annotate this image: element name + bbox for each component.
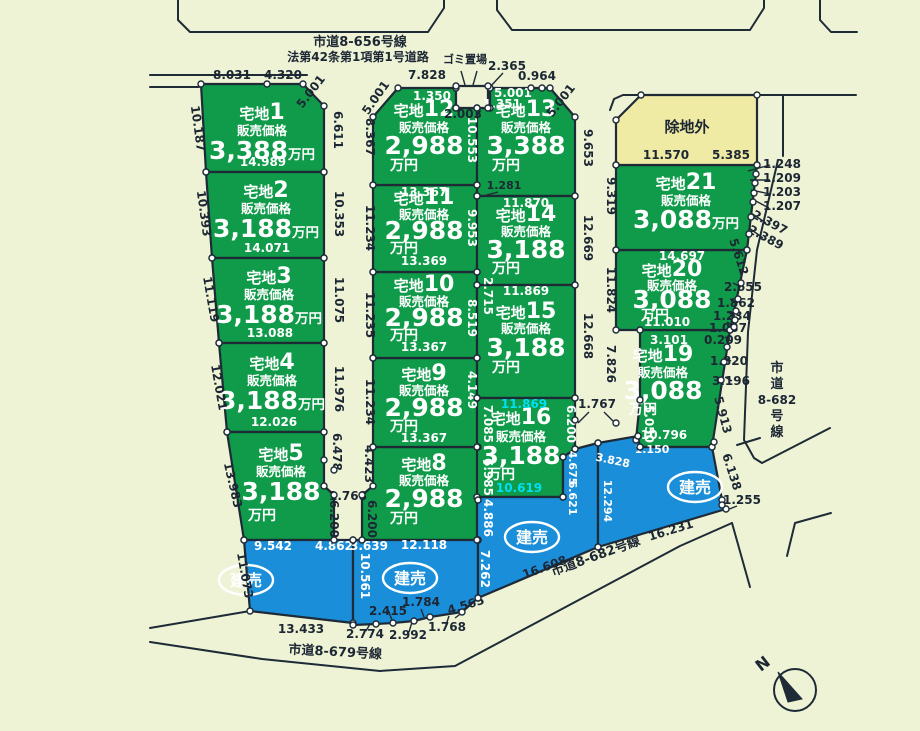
vertex-dot [350,622,356,628]
kenbai-label-kenbai-south: 建売 [516,528,548,547]
vertex-dot [748,214,754,220]
vertex-dot [754,162,760,168]
vertex-dot [370,355,376,361]
map-label: 線 [770,424,784,440]
vertex-dot [474,269,480,275]
map-label: 4.149 [465,371,479,409]
vertex-dot [572,282,578,288]
vertex-dot [572,417,578,423]
map-label: 10.353 [332,191,346,237]
vertex-dot [321,483,327,489]
vertex-dot [370,483,376,489]
map-label: 6.200 [365,500,379,538]
vertex-dot [203,169,209,175]
map-label: 市道8-656号線 [313,34,408,50]
vertex-dot [719,502,725,508]
map-label: 13.367 [401,340,447,354]
map-label: 12.118 [401,538,447,552]
vertex-dot [321,457,327,463]
map-label: 11.824 [604,267,618,313]
vertex-dot [572,446,578,452]
map-label: 11.075 [332,277,346,323]
vertex-dot [753,171,759,177]
road-line [732,523,750,587]
map-label: 11.976 [332,366,346,412]
vertex-dot [528,85,534,91]
vertex-dot [300,81,306,87]
vertex-dot [331,537,337,543]
vertex-dot [638,92,644,98]
map-label: 11.234 [363,205,377,251]
vertex-dot [732,317,738,323]
plot-price-lot-12: 2,988 [384,131,463,160]
land-subdivision-map: 宅地1販売価格3,388万円宅地2販売価格3,188万円宅地3販売価格3,188… [0,0,920,731]
vertex-dot [560,454,566,460]
map-label: 7.262 [478,550,492,588]
vertex-dot [427,614,433,620]
north-arrow-pointer [778,672,802,702]
map-label: 6.200 [564,405,578,443]
map-label: 10.619 [496,481,542,495]
map-label: 1.209 [763,171,801,185]
map-label: 12.669 [581,215,595,261]
map-label: 10.561 [358,553,372,599]
vertex-dot [738,280,744,286]
map-label: 7.826 [604,345,618,383]
map-label: 1.281 [487,179,522,192]
vertex-dot [724,344,730,350]
map-label: 14.071 [244,241,290,255]
vertex-dot [560,494,566,500]
vertex-dot [331,492,337,498]
road-line [497,0,764,30]
map-label: 4.320 [264,68,302,82]
map-label: 5.385 [712,148,750,162]
vertex-dot [613,117,619,123]
vertex-dot [224,429,230,435]
plot-price-lot-13: 3,388 [486,131,565,160]
vertex-dot [721,359,727,365]
vertex-dot [453,83,459,89]
vertex-dot [395,85,401,91]
vertex-dot [459,609,465,615]
vertex-dot [613,247,619,253]
vertex-dot [264,81,270,87]
map-label: 10.553 [465,117,479,163]
plot-price-unit-lot-8: 万円 [389,511,418,527]
map-label: 1.784 [402,595,440,609]
vertex-dot [321,169,327,175]
vertex-dot [635,433,641,439]
vertex-dot [359,537,365,543]
plot-price-lot-15: 3,188 [486,333,565,362]
leader-line [461,71,465,85]
vertex-dot [474,537,480,543]
vertex-dot [539,85,545,91]
vertex-dot [735,296,741,302]
vertex-dot [613,420,619,426]
map-label: 号 [770,409,783,424]
vertex-dot [750,199,756,205]
map-label: 4.423 [362,445,376,483]
vertex-dot [241,537,247,543]
map-label: 11.869 [503,284,549,298]
map-label: 11.010 [644,315,690,329]
map-label: 9.953 [465,209,479,247]
map-label: 1.767 [578,397,616,411]
vertex-dot [547,85,553,91]
map-label: 9.319 [604,177,618,215]
map-label: 6.621 [566,481,579,516]
vertex-dot [370,182,376,188]
map-label: ゴミ置場 [443,52,487,66]
leader-line [578,412,589,423]
map-label: 4.886 [481,499,495,537]
map-label: 道 [770,376,783,392]
map-label: 8.031 [213,68,251,82]
plot-price-lot-9: 2,988 [384,393,463,422]
map-label: 6.985 [481,458,495,496]
map-label: 6.478 [330,433,344,471]
vertex-dot [485,83,491,89]
vertex-dot [247,608,253,614]
vertex-dot [321,429,327,435]
vertex-dot [321,340,327,346]
map-label: 9.653 [581,129,595,167]
map-label: 14.697 [659,249,705,263]
vertex-dot [373,621,379,627]
map-label: 6.200 [327,500,341,538]
plot-price-lot-5: 3,188 [241,477,320,506]
map-label: 1.203 [763,185,801,199]
map-label: 8-682 [758,393,796,407]
kenbai-label-kenbai-mid: 建売 [394,569,426,588]
vertex-dot [718,377,724,383]
map-label: 13.367 [401,185,447,199]
map-label: 11.869 [501,397,547,411]
plot-price-lot-8: 2,988 [384,484,463,513]
map-label: 7.085 [481,405,495,443]
plot-price-unit-lot-15: 万円 [491,360,520,376]
map-label: 11.234 [363,379,377,425]
vertex-dot [216,340,222,346]
map-label: 13.367 [401,431,447,445]
plot-price-unit-lot-13: 万円 [491,158,520,174]
vertex-dot [474,355,480,361]
map-label: 2.992 [389,628,427,642]
road-line [178,0,444,32]
kenbai-label-kenbai-east: 建売 [679,478,711,497]
vertex-dot [744,247,750,253]
map-label: 1.350 [413,89,451,103]
map-label: 除地外 [664,118,709,136]
vertex-dot [453,105,459,111]
vertex-dot [390,620,396,626]
north-arrow: N [751,652,816,711]
map-label: 12.294 [601,480,614,523]
map-label: 13.369 [401,254,447,268]
north-label: N [751,652,773,675]
vertex-dot [752,180,758,186]
vertex-dot [572,114,578,120]
vertex-dot [613,327,619,333]
map-label: 9.542 [254,539,292,553]
map-label: 1.255 [723,493,761,507]
map-label: 1.768 [428,620,466,634]
plot-price-lot-14: 3,188 [486,235,565,264]
map-label: 12.668 [581,313,595,359]
map-label: 2.715 [481,277,495,315]
vertex-dot [475,595,481,601]
vertex-dot [754,92,760,98]
vertex-dot [474,193,480,199]
map-label: 7.828 [408,68,446,82]
map-label: 0.209 [704,333,742,347]
vertex-dot [198,81,204,87]
vertex-dot [475,497,481,503]
vertex-dot [637,397,643,403]
vertex-dot [746,231,752,237]
vertex-dot [751,190,757,196]
map-label: 12.026 [251,415,297,429]
vertex-dot [572,395,578,401]
road-line [737,438,760,445]
map-label: 13.088 [247,326,293,340]
vertex-dot [370,114,376,120]
vertex-dot [637,327,643,333]
vertex-dot [370,269,376,275]
vertex-dot [595,440,601,446]
vertex-dot [331,467,337,473]
site-plan-canvas: 宅地1販売価格3,388万円宅地2販売価格3,188万円宅地3販売価格3,188… [0,0,920,731]
plot-price-unit-lot-12: 万円 [389,158,418,174]
vertex-dot [637,444,643,450]
road-line [787,513,831,556]
vertex-dot [321,255,327,261]
plot-price-lot-19: 3,088 [623,376,702,405]
map-label: 11.235 [363,292,377,338]
vertex-dot [474,282,480,288]
map-label: 8.519 [465,299,479,337]
map-label: 13.433 [278,622,324,636]
map-label: 8.367 [363,118,377,156]
vertex-dot [733,308,739,314]
plot-price-unit-lot-5: 万円 [247,508,276,524]
vertex-dot [474,105,480,111]
map-label: 市 [770,360,783,376]
vertex-dot [485,105,491,111]
map-label: 1.820 [710,354,748,368]
plot-price-unit-lot-14: 万円 [491,261,520,277]
map-label: 市道8-679号線 [288,642,383,663]
vertex-dot [595,544,601,550]
map-label: 1.248 [763,157,801,171]
vertex-dot [321,103,327,109]
vertex-dot [613,162,619,168]
vertex-dot [474,395,480,401]
vertex-dot [474,444,480,450]
vertex-dot [209,255,215,261]
map-label: 11.870 [503,196,549,210]
vertex-dot [731,324,737,330]
road-line [150,611,250,628]
map-label: 3.101 [650,333,688,347]
map-label: 2.774 [346,627,384,641]
map-label: 11.570 [643,148,689,162]
map-label: 5.050 [642,405,656,443]
road-line [820,0,857,32]
map-label: 法第42条第1項第1号道路 [287,49,429,64]
map-label: 0.964 [518,69,556,83]
map-label: 6.611 [331,111,345,149]
map-label: 14.989 [240,155,286,169]
vertex-dot [350,537,356,543]
vertex-dot [370,444,376,450]
vertex-dot [359,492,365,498]
map-label: 1.207 [763,199,801,213]
vertex-dot [711,439,717,445]
vertex-dot [572,193,578,199]
vertex-dot [411,618,417,624]
vertex-dot [474,182,480,188]
leader-line [473,71,477,85]
